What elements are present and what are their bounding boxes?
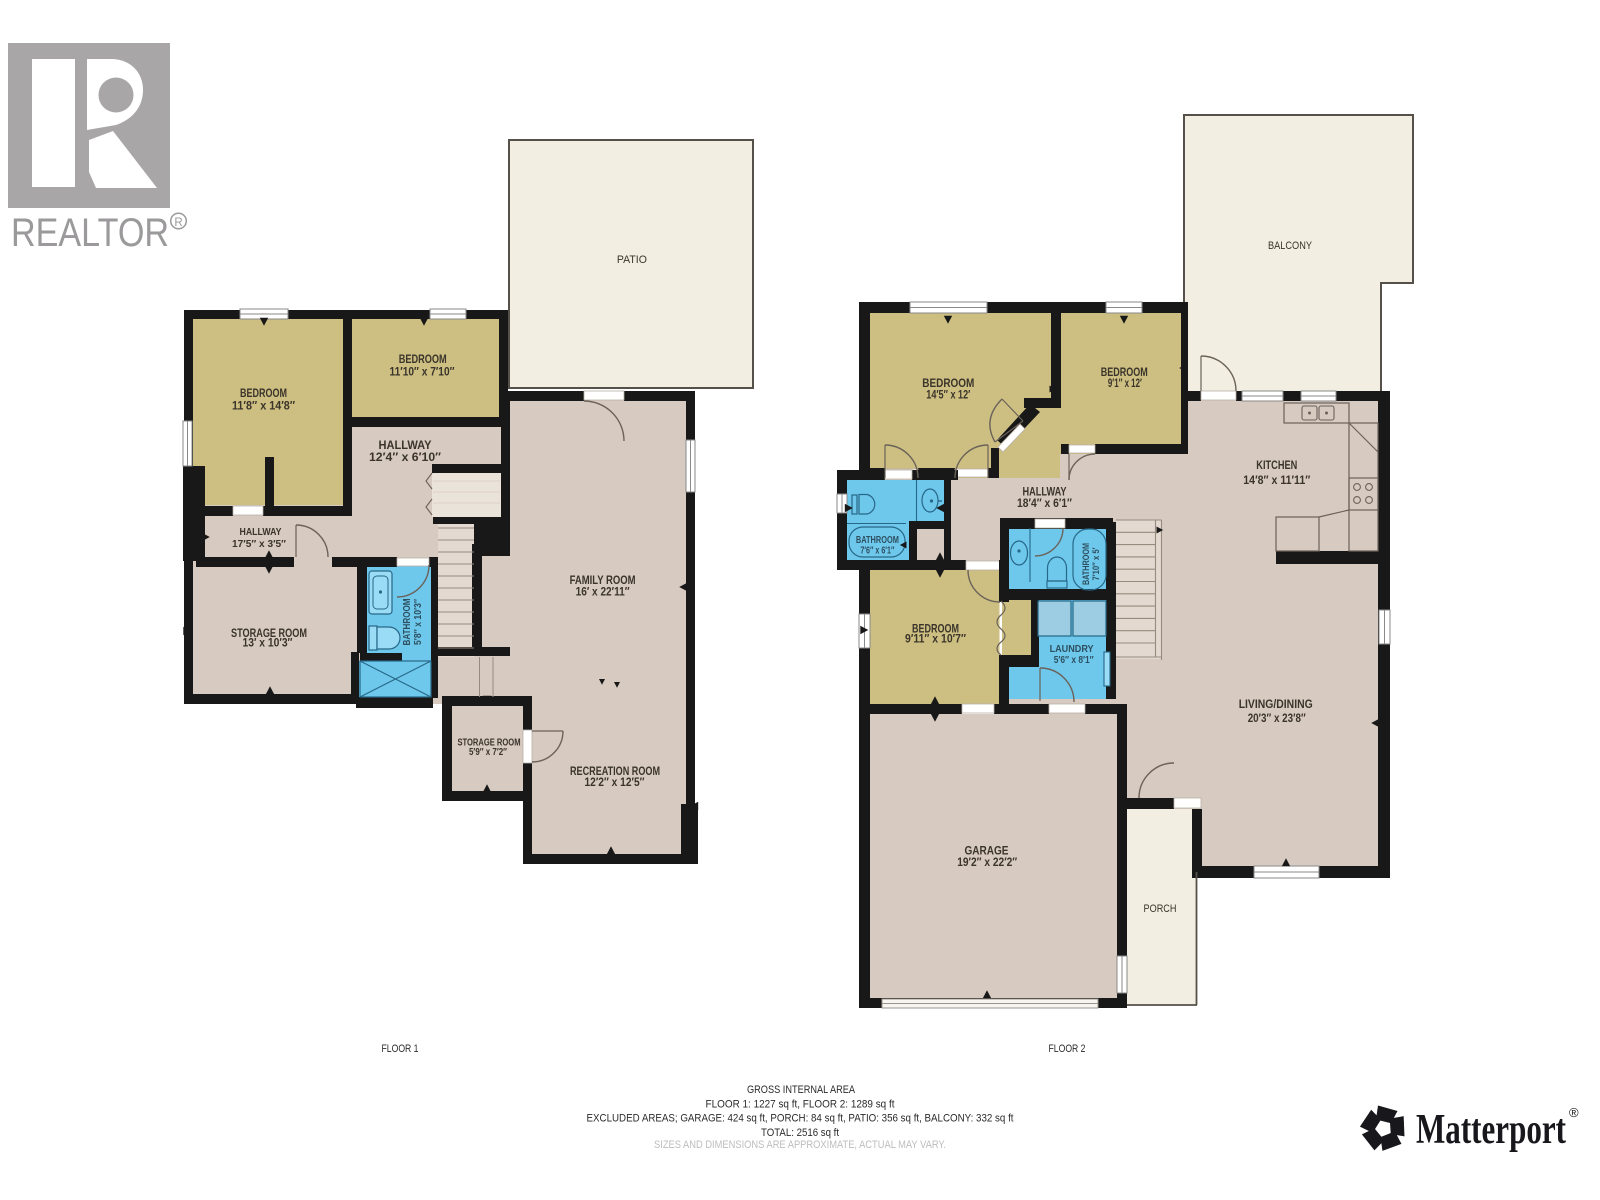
- svg-text:BALCONY: BALCONY: [1268, 240, 1313, 252]
- svg-text:FLOOR 1: 1227 sq ft, FLOOR 2:: FLOOR 1: 1227 sq ft, FLOOR 2: 1289 sq ft: [706, 1099, 895, 1111]
- svg-text:5′6″ x 8′1″: 5′6″ x 8′1″: [1054, 654, 1094, 666]
- svg-text:5′8″ x 10′3″: 5′8″ x 10′3″: [412, 599, 424, 645]
- svg-text:5′9″ x 7′2″: 5′9″ x 7′2″: [469, 747, 507, 758]
- svg-text:PORCH: PORCH: [1144, 903, 1177, 915]
- svg-text:Matterport: Matterport: [1416, 1107, 1566, 1153]
- svg-text:19′2″ x 22′2″: 19′2″ x 22′2″: [957, 855, 1017, 869]
- svg-text:9′11″ x 10′7″: 9′11″ x 10′7″: [905, 632, 966, 646]
- svg-text:13′ x 10′3″: 13′ x 10′3″: [243, 636, 293, 650]
- svg-text:17′5″ x 3′5″: 17′5″ x 3′5″: [232, 538, 286, 550]
- svg-text:11′8″ x 14′8″: 11′8″ x 14′8″: [232, 399, 295, 413]
- svg-text:7′6″ x 6′1″: 7′6″ x 6′1″: [860, 545, 894, 556]
- svg-text:FLOOR 1: FLOOR 1: [382, 1043, 419, 1055]
- svg-text:LIVING/DINING: LIVING/DINING: [1239, 699, 1313, 711]
- svg-text:FLOOR 2: FLOOR 2: [1049, 1043, 1086, 1055]
- svg-text:R: R: [174, 217, 182, 229]
- svg-text:16′ x 22′11″: 16′ x 22′11″: [576, 585, 630, 599]
- svg-text:14′5″ x 12′: 14′5″ x 12′: [926, 388, 970, 402]
- svg-text:PATIO: PATIO: [617, 254, 647, 266]
- svg-text:REALTOR: REALTOR: [11, 211, 169, 255]
- svg-text:®: ®: [1569, 1105, 1579, 1120]
- svg-text:14′8″ x 11′11″: 14′8″ x 11′11″: [1243, 475, 1310, 487]
- svg-text:BATHROOM: BATHROOM: [856, 535, 899, 546]
- svg-text:EXCLUDED AREAS; GARAGE: 424 sq: EXCLUDED AREAS; GARAGE: 424 sq ft, PORCH…: [587, 1113, 1014, 1125]
- svg-text:KITCHEN: KITCHEN: [1256, 460, 1297, 472]
- svg-text:18′4″ x 6′1″: 18′4″ x 6′1″: [1017, 496, 1072, 510]
- svg-text:12′4″ x 6′10″: 12′4″ x 6′10″: [369, 450, 441, 464]
- svg-text:12′2″ x 12′5″: 12′2″ x 12′5″: [585, 775, 645, 789]
- svg-text:TOTAL: 2516 sq ft: TOTAL: 2516 sq ft: [761, 1127, 839, 1139]
- svg-text:7′10″ x 5′: 7′10″ x 5′: [1091, 547, 1102, 581]
- svg-text:GROSS INTERNAL AREA: GROSS INTERNAL AREA: [747, 1084, 856, 1096]
- svg-text:SIZES AND DIMENSIONS ARE APPRO: SIZES AND DIMENSIONS ARE APPROXIMATE, AC…: [654, 1139, 946, 1151]
- svg-text:HALLWAY: HALLWAY: [240, 526, 282, 538]
- svg-text:9′1″ x 12′: 9′1″ x 12′: [1108, 376, 1142, 390]
- svg-text:20′3″ x 23′8″: 20′3″ x 23′8″: [1248, 713, 1306, 725]
- svg-text:11′10″ x 7′10″: 11′10″ x 7′10″: [390, 365, 455, 379]
